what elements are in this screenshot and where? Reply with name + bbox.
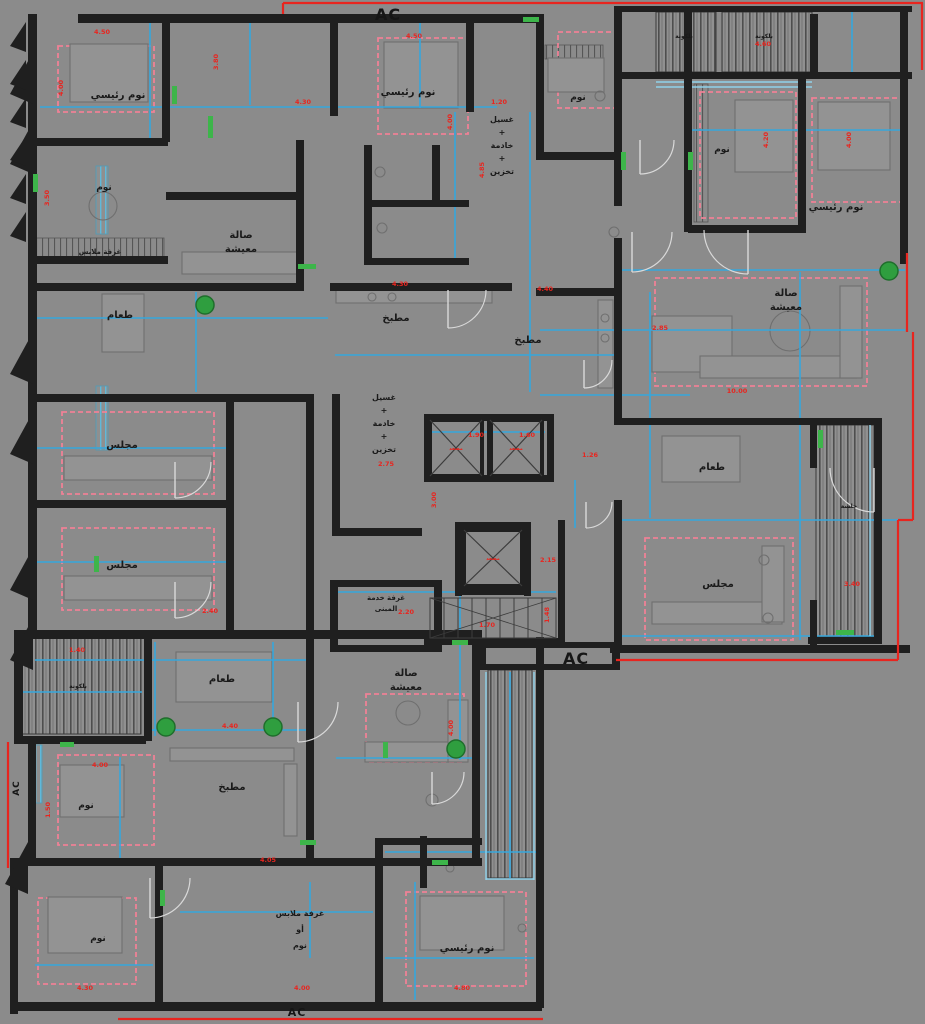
plant-symbol bbox=[157, 718, 175, 736]
door-swing-arc bbox=[640, 140, 674, 174]
dimension-label: 4.40 bbox=[537, 285, 554, 293]
wall-segment bbox=[28, 500, 230, 508]
room-label: جلسة bbox=[841, 503, 858, 510]
wall-segment bbox=[378, 838, 482, 845]
dimension-label: 3.80 bbox=[212, 54, 220, 71]
wall-segment bbox=[364, 200, 469, 207]
door-sill bbox=[298, 264, 316, 269]
dimension-label: 4.60 bbox=[755, 40, 772, 48]
facade-fin-small bbox=[10, 98, 26, 128]
wall-segment bbox=[558, 520, 565, 642]
room-label: صالة bbox=[774, 288, 797, 299]
wall-segment bbox=[28, 138, 168, 146]
wall-segment bbox=[478, 664, 620, 670]
dimension-label: 3.40 bbox=[844, 580, 861, 588]
room-label: + bbox=[381, 432, 388, 441]
wall-segment bbox=[330, 580, 440, 587]
furniture-circle bbox=[609, 227, 619, 237]
door-sill bbox=[160, 890, 165, 906]
balcony-hatch bbox=[816, 425, 874, 637]
facade-fin bbox=[10, 548, 33, 600]
wall-segment bbox=[524, 522, 531, 596]
furniture-item bbox=[598, 300, 613, 388]
dimension-label: 1.90 bbox=[468, 431, 485, 439]
dimension-label: 2.40 bbox=[202, 607, 219, 615]
wall-segment bbox=[614, 418, 820, 425]
furniture-item bbox=[420, 896, 504, 950]
room-label: تخزين bbox=[490, 167, 514, 176]
wall-segment bbox=[547, 414, 554, 482]
dimension-label: 2.20 bbox=[398, 608, 415, 616]
wall-segment bbox=[306, 394, 314, 637]
wall-segment bbox=[536, 152, 624, 160]
room-label: مجلس bbox=[702, 579, 734, 590]
wall-segment bbox=[536, 858, 544, 1008]
plant-symbol bbox=[880, 262, 898, 280]
wall-segment bbox=[610, 645, 910, 653]
wardrobe-comb bbox=[694, 84, 708, 222]
dimension-label: 4.30 bbox=[392, 280, 409, 288]
room-label: مطبخ bbox=[514, 335, 541, 346]
door-swing-arc bbox=[704, 230, 748, 274]
wall-segment bbox=[614, 500, 622, 652]
dimension-label: 4.50 bbox=[94, 28, 111, 36]
dimension-label: 1.48 bbox=[543, 607, 551, 624]
room-label: مجلس bbox=[106, 440, 138, 451]
room-label: نوم bbox=[570, 93, 586, 103]
door-swing-arc bbox=[298, 702, 338, 742]
room-label: نوم bbox=[714, 145, 730, 155]
dimension-label: 1.26 bbox=[582, 451, 599, 459]
room-label: نوم bbox=[96, 183, 112, 193]
furniture-item bbox=[384, 42, 458, 108]
wall-segment bbox=[455, 588, 531, 595]
room-label: بلكونة bbox=[755, 33, 773, 40]
wall-segment bbox=[306, 637, 314, 861]
wall-segment bbox=[144, 633, 152, 741]
wall-segment bbox=[472, 637, 480, 865]
wall-segment bbox=[14, 630, 482, 639]
dimension-label: 4.00 bbox=[92, 761, 109, 769]
furniture-item bbox=[182, 252, 300, 274]
ac-label: AC bbox=[563, 649, 589, 668]
room-label: + bbox=[499, 154, 506, 163]
dimension-label: 1.70 bbox=[479, 621, 496, 629]
wall-segment bbox=[330, 580, 338, 652]
wall-segment bbox=[226, 394, 234, 637]
wall-segment bbox=[28, 737, 36, 863]
dimension-label: 1.40 bbox=[69, 646, 86, 654]
door-swing-arc bbox=[586, 502, 612, 528]
room-label: المبنى bbox=[375, 605, 398, 613]
wall-segment bbox=[798, 75, 806, 233]
facade-fin bbox=[10, 412, 33, 464]
wall-segment bbox=[900, 6, 908, 264]
dimension-label: 3.50 bbox=[43, 190, 51, 207]
carpet-outline bbox=[62, 412, 214, 494]
wall-segment bbox=[432, 145, 440, 207]
room-label: مطبخ bbox=[218, 782, 245, 793]
elevator-label: مصعد bbox=[509, 446, 523, 452]
room-label: غرفة ملابس bbox=[79, 248, 122, 256]
room-label: غرفة ملابس bbox=[276, 909, 325, 919]
wall-segment bbox=[28, 256, 168, 264]
wall-segment bbox=[162, 16, 170, 142]
wall-segment bbox=[10, 1002, 542, 1011]
dimension-label: 4.85 bbox=[478, 162, 486, 179]
room-label: غرفة خدمة bbox=[367, 594, 405, 602]
wall-segment bbox=[455, 522, 462, 596]
dimension-label: 4.20 bbox=[762, 132, 770, 149]
plant-symbol bbox=[196, 296, 214, 314]
room-label: طعام bbox=[209, 674, 235, 685]
wall-segment bbox=[375, 838, 383, 1006]
furniture-item bbox=[64, 456, 212, 480]
room-label: خادمة bbox=[373, 419, 396, 428]
dimension-label: 4.05 bbox=[260, 856, 277, 864]
room-label: نوم رئيسي bbox=[381, 87, 436, 98]
dimension-label: 4.00 bbox=[57, 80, 65, 97]
room-label: نوم رئيسي bbox=[809, 202, 864, 213]
dimension-label: 4.30 bbox=[77, 984, 94, 992]
furniture-item bbox=[64, 576, 212, 600]
room-label: طعام bbox=[699, 462, 725, 473]
floor-plan-drawing: مصعدمصعدمصعد4.504.004.304.504.001.204.85… bbox=[0, 0, 925, 1024]
door-sill bbox=[172, 86, 177, 104]
wall-segment bbox=[620, 72, 912, 79]
furniture-circle bbox=[518, 924, 526, 932]
dimension-label: 1.20 bbox=[491, 98, 508, 106]
wall-segment bbox=[614, 6, 622, 206]
door-swing-arc bbox=[632, 232, 672, 272]
door-sill bbox=[621, 152, 626, 170]
wall-segment bbox=[28, 394, 312, 402]
wall-segment bbox=[622, 6, 912, 12]
facade-fin-small bbox=[10, 22, 26, 52]
wall-segment bbox=[810, 418, 817, 468]
elevator-label: مصعد bbox=[449, 446, 463, 452]
door-sill bbox=[836, 630, 854, 635]
facade-fin-small bbox=[10, 212, 26, 242]
facade-fin-small bbox=[10, 60, 26, 90]
dimension-label: 4.00 bbox=[845, 132, 853, 149]
room-label: خادمة bbox=[491, 141, 514, 150]
wall-segment bbox=[808, 637, 882, 644]
ac-label: AC bbox=[12, 780, 22, 796]
room-label: أو bbox=[295, 924, 304, 934]
wall-segment bbox=[874, 418, 882, 644]
wall-segment bbox=[424, 638, 564, 645]
room-label: معيشة bbox=[770, 302, 802, 313]
room-label: نوم رئيسي bbox=[440, 943, 495, 954]
furniture-item bbox=[840, 286, 862, 378]
wall-segment bbox=[810, 14, 818, 76]
furniture-item bbox=[700, 356, 856, 378]
door-sill bbox=[300, 840, 316, 845]
dimension-label: 3.00 bbox=[430, 492, 438, 509]
wardrobe-comb bbox=[545, 45, 603, 59]
room-label: + bbox=[499, 128, 506, 137]
wall-segment bbox=[466, 14, 474, 112]
wall-segment bbox=[612, 642, 620, 670]
wall-segment bbox=[364, 258, 469, 265]
door-sill bbox=[33, 174, 38, 192]
wall-segment bbox=[28, 14, 37, 638]
furniture-item bbox=[170, 748, 294, 761]
wall-segment bbox=[28, 283, 304, 291]
room-label: صالة bbox=[229, 230, 252, 241]
dimension-label: 4.00 bbox=[446, 114, 454, 131]
dimension-label: 2.15 bbox=[540, 556, 557, 564]
furniture-item bbox=[818, 102, 890, 170]
ac-label: AC bbox=[288, 1006, 307, 1019]
wall-segment bbox=[614, 238, 622, 424]
room-label: نوم bbox=[90, 934, 106, 944]
dimension-label: 1.50 bbox=[44, 802, 52, 819]
room-label: صالة bbox=[394, 668, 417, 679]
facade-fin bbox=[10, 332, 33, 384]
dimension-label: 2.75 bbox=[378, 460, 395, 468]
room-label: طعام bbox=[107, 310, 133, 321]
wall-segment bbox=[455, 522, 531, 529]
dimension-label: 10.00 bbox=[727, 387, 748, 395]
room-label: تخزين bbox=[372, 445, 396, 454]
dimension-label: 4.50 bbox=[406, 32, 423, 40]
room-label: نوم رئيسي bbox=[91, 90, 146, 101]
wall-segment bbox=[420, 836, 427, 888]
dimension-label: 4.00 bbox=[294, 984, 311, 992]
furniture-circle bbox=[375, 167, 385, 177]
furniture-item bbox=[336, 290, 492, 303]
floor-plan-page: مصعدمصعدمصعد4.504.004.304.504.001.204.85… bbox=[0, 0, 925, 1024]
facade-fin bbox=[10, 618, 33, 670]
furniture-item bbox=[48, 897, 122, 953]
wall-segment bbox=[166, 192, 302, 200]
wall-segment bbox=[155, 866, 163, 1006]
room-label: مطبخ bbox=[382, 313, 409, 324]
door-sill bbox=[432, 860, 448, 865]
wall-segment bbox=[332, 528, 422, 536]
room-label: + bbox=[381, 406, 388, 415]
ac-label: AC bbox=[375, 5, 401, 24]
furniture-item bbox=[284, 764, 297, 836]
wall-segment bbox=[810, 418, 880, 425]
furniture-circle bbox=[396, 701, 420, 725]
plant-symbol bbox=[264, 718, 282, 736]
wall-segment bbox=[536, 637, 544, 865]
room-label: غسيل bbox=[372, 393, 396, 402]
door-sill bbox=[688, 152, 693, 170]
elevator-label: مصعد bbox=[486, 556, 500, 562]
wall-segment bbox=[332, 394, 340, 534]
dimension-label: 4.80 bbox=[454, 984, 471, 992]
furniture-item bbox=[662, 436, 740, 482]
furniture-circle bbox=[377, 223, 387, 233]
facade-fin-small bbox=[10, 174, 26, 204]
door-sill bbox=[452, 640, 468, 645]
furniture-circle bbox=[770, 311, 810, 351]
door-sill bbox=[94, 556, 99, 572]
wall-segment bbox=[536, 14, 544, 160]
plant-symbol bbox=[447, 740, 465, 758]
furniture-item bbox=[548, 58, 604, 92]
room-label: غسيل bbox=[490, 115, 514, 124]
dimension-label: 4.40 bbox=[222, 722, 239, 730]
room-label: معيشة bbox=[225, 244, 257, 255]
wall-segment bbox=[688, 225, 806, 233]
room-label: نوم bbox=[293, 941, 307, 950]
window-louver-hatch bbox=[96, 166, 108, 234]
door-sill bbox=[60, 742, 74, 747]
door-sill bbox=[818, 430, 823, 448]
room-label: نوم bbox=[78, 801, 94, 811]
door-sill bbox=[383, 742, 388, 758]
room-label: بلكونة bbox=[675, 33, 693, 40]
wall-segment bbox=[10, 858, 482, 866]
furniture-item bbox=[102, 294, 144, 352]
wall-segment bbox=[330, 283, 512, 291]
furniture-item bbox=[762, 546, 784, 622]
room-label: مجلس bbox=[106, 560, 138, 571]
dimension-label: 4.00 bbox=[447, 720, 455, 737]
dimension-label: 1.60 bbox=[519, 431, 536, 439]
dimension-label: 4.30 bbox=[295, 98, 312, 106]
wall-segment bbox=[330, 14, 338, 116]
dimension-label: 2.85 bbox=[652, 324, 669, 332]
door-swing-arc bbox=[432, 772, 464, 804]
door-sill bbox=[208, 116, 213, 138]
room-label: بلكونة bbox=[69, 683, 87, 690]
door-sill bbox=[523, 17, 539, 22]
wall-segment bbox=[330, 645, 440, 652]
room-label: معيشة bbox=[390, 682, 422, 693]
